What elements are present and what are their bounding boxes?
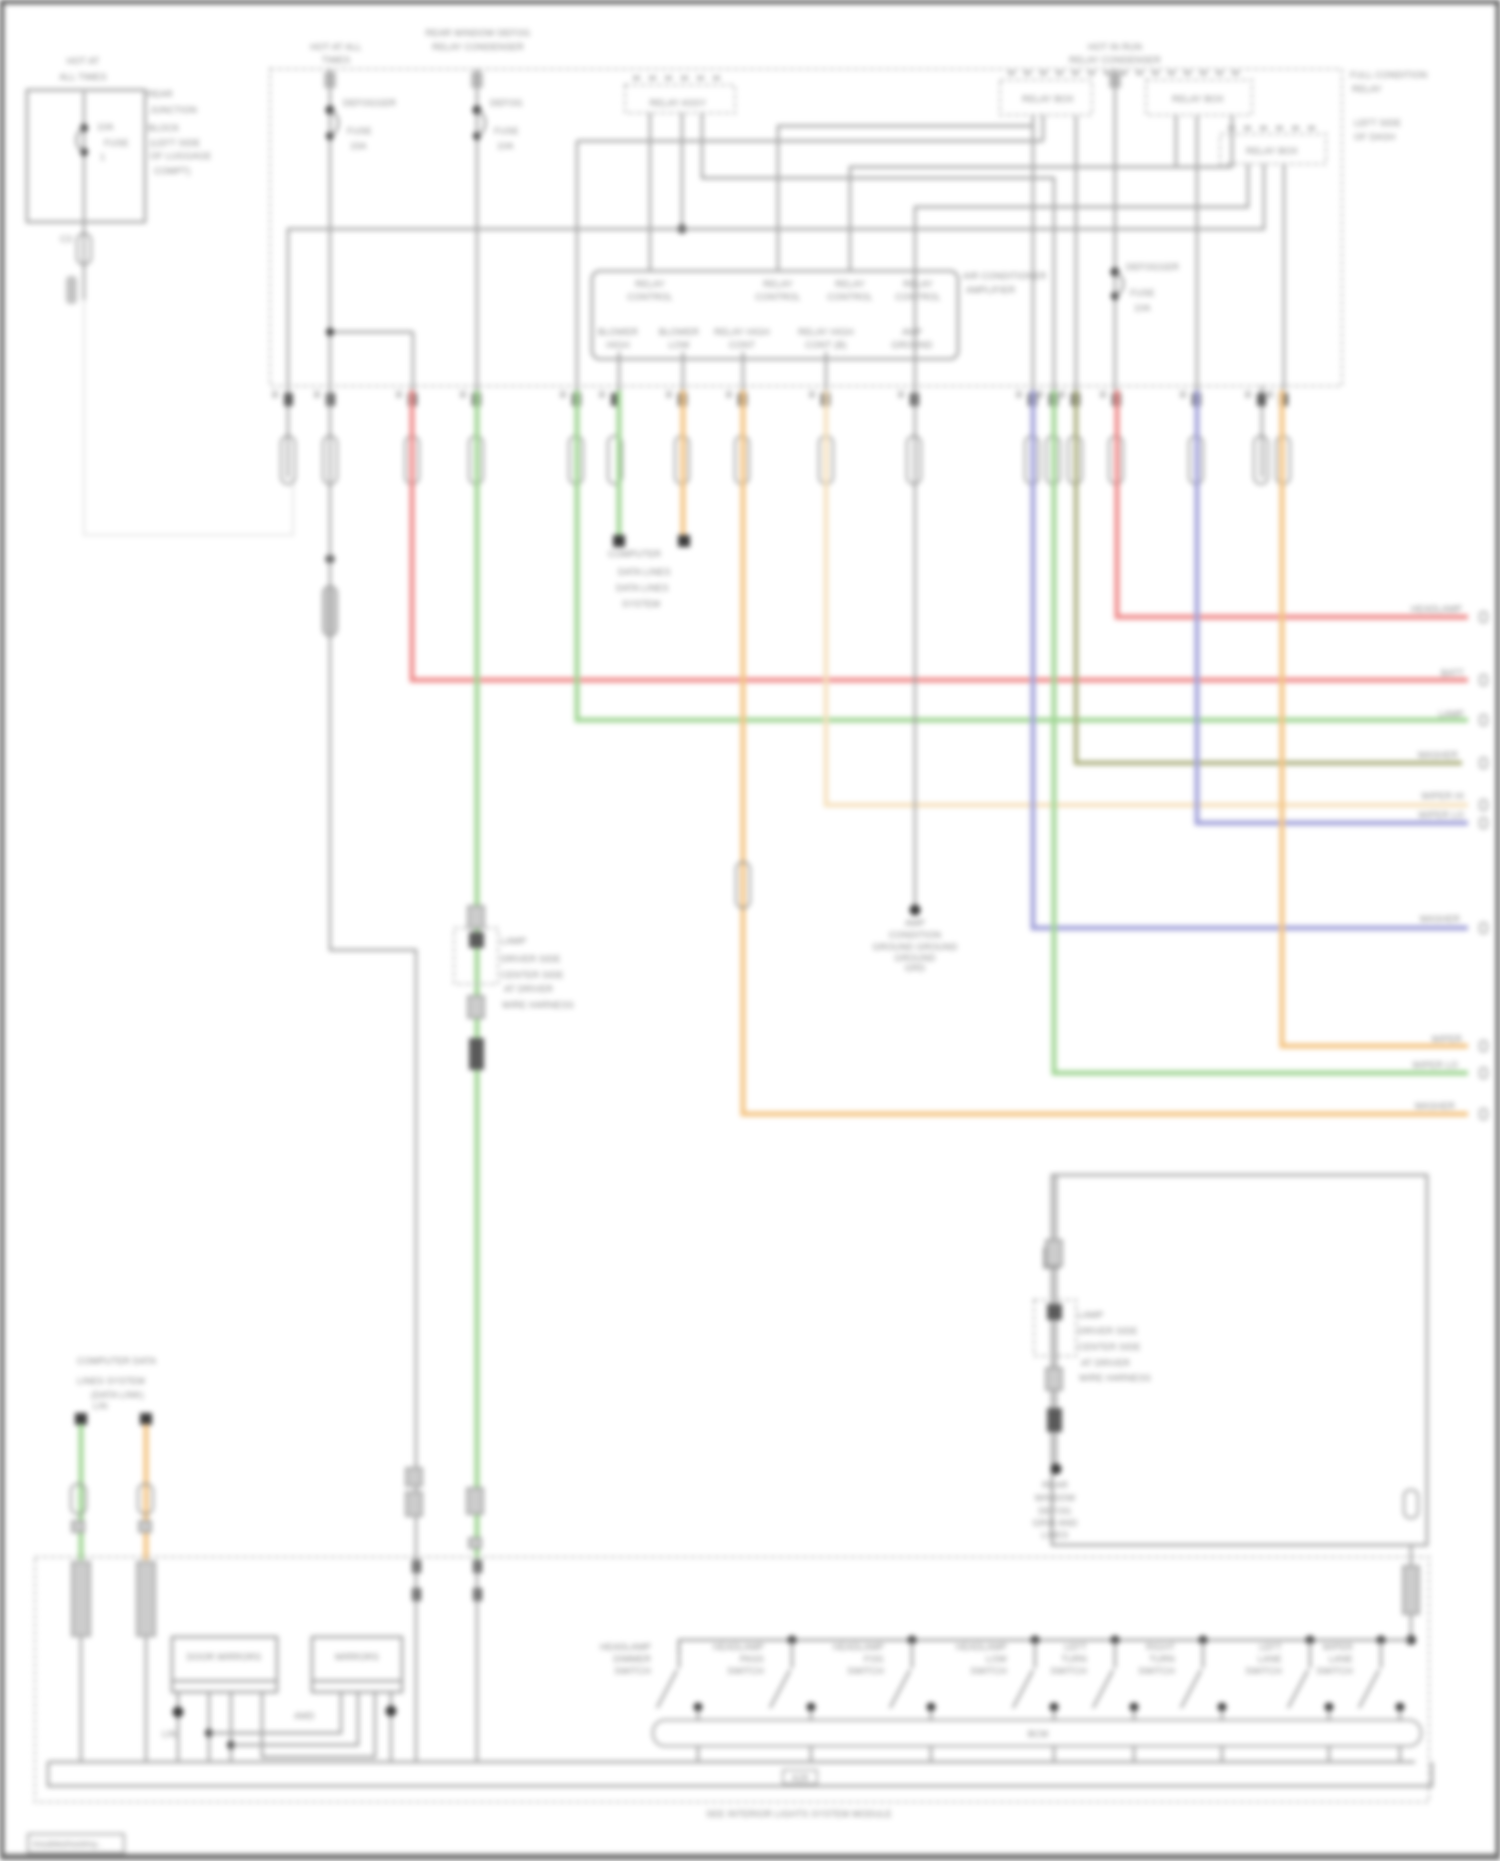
svg-text:CONTROL: CONTROL xyxy=(755,292,800,302)
svg-text:AT DRIVER: AT DRIVER xyxy=(504,984,553,994)
svg-text:GROUND: GROUND xyxy=(891,340,932,350)
svg-text:troubleshootmy..: troubleshootmy.. xyxy=(33,1839,102,1849)
svg-text:4WD: 4WD xyxy=(294,1711,315,1721)
svg-text:CONTROL: CONTROL xyxy=(827,292,872,302)
svg-text:1: 1 xyxy=(100,152,105,162)
svg-text:MIRRORS: MIRRORS xyxy=(335,1652,379,1662)
svg-text:OF LUGGAGE: OF LUGGAGE xyxy=(150,151,212,161)
svg-text:CONT: CONT xyxy=(729,340,756,350)
svg-text:(LEFT SIDE: (LEFT SIDE xyxy=(150,138,200,148)
svg-text:BATT: BATT xyxy=(1441,668,1464,678)
svg-text:AMPLIFIER: AMPLIFIER xyxy=(966,285,1016,295)
svg-text:GROUND: GROUND xyxy=(894,953,935,963)
svg-text:CONTROL: CONTROL xyxy=(627,292,672,302)
svg-text:DEFOG: DEFOG xyxy=(1038,1506,1071,1516)
svg-text:RELAY: RELAY xyxy=(835,279,865,289)
svg-text:WASHER: WASHER xyxy=(1415,1101,1456,1111)
svg-text:COMPUTER: COMPUTER xyxy=(608,549,661,559)
svg-text:RELAY BOX: RELAY BOX xyxy=(1172,94,1224,104)
svg-text:HEADLAMP: HEADLAMP xyxy=(600,1642,651,1652)
svg-text:GROUND GROUND: GROUND GROUND xyxy=(872,942,957,952)
svg-text:WINDOW: WINDOW xyxy=(1035,1493,1076,1503)
svg-text:HEADLAMP: HEADLAMP xyxy=(1411,604,1462,614)
svg-text:TIMES: TIMES xyxy=(322,55,351,65)
svg-text:DEFOGGER: DEFOGGER xyxy=(343,98,396,108)
svg-text:HOT AT ALL: HOT AT ALL xyxy=(310,42,362,52)
svg-text:DATA LINES: DATA LINES xyxy=(618,567,671,577)
svg-text:WIPER: WIPER xyxy=(1431,1034,1462,1044)
svg-text:REAR WINDOW DEFOG: REAR WINDOW DEFOG xyxy=(426,28,531,38)
svg-text:HEADLAMP: HEADLAMP xyxy=(713,1642,764,1652)
svg-text:CONDITION: CONDITION xyxy=(889,930,941,940)
svg-text:10A: 10A xyxy=(97,122,114,132)
svg-text:HOT AT: HOT AT xyxy=(67,56,100,66)
svg-text:DATA LINES: DATA LINES xyxy=(616,583,669,593)
svg-text:RELAY BOX: RELAY BOX xyxy=(1022,94,1074,104)
svg-text:SWITCH: SWITCH xyxy=(1138,1666,1175,1676)
svg-text:10A: 10A xyxy=(1134,303,1151,313)
svg-text:RELAY: RELAY xyxy=(1352,84,1382,94)
svg-text:SWITCH: SWITCH xyxy=(970,1666,1007,1676)
svg-text:TURN: TURN xyxy=(1061,1654,1087,1664)
svg-text:JUNCTION: JUNCTION xyxy=(150,105,197,115)
svg-text:REAR: REAR xyxy=(147,89,173,99)
svg-text:GRID AND: GRID AND xyxy=(1032,1518,1077,1528)
svg-text:FOG: FOG xyxy=(864,1654,884,1664)
svg-text:FUSE: FUSE xyxy=(494,126,519,136)
svg-text:FULL CONDITION: FULL CONDITION xyxy=(1350,70,1427,80)
svg-text:RIGHT: RIGHT xyxy=(1146,1642,1175,1652)
svg-text:FUSE: FUSE xyxy=(347,126,372,136)
svg-text:FUSE: FUSE xyxy=(1130,288,1155,298)
svg-text:SWITCH: SWITCH xyxy=(614,1666,651,1676)
svg-text:RELAY BOX: RELAY BOX xyxy=(1246,146,1298,156)
svg-text:LIN: LIN xyxy=(162,1729,177,1739)
svg-text:SYSTEM: SYSTEM xyxy=(622,599,660,609)
svg-text:DRIVER SIDE: DRIVER SIDE xyxy=(501,954,561,964)
svg-text:CONT (B): CONT (B) xyxy=(805,340,846,350)
svg-text:LAMP: LAMP xyxy=(1078,1310,1103,1320)
svg-text:RELAY HIGH: RELAY HIGH xyxy=(798,327,854,337)
svg-text:HEADLAMP: HEADLAMP xyxy=(833,1642,884,1652)
svg-text:BLOWER: BLOWER xyxy=(659,327,700,337)
svg-text:LEFT SIDE: LEFT SIDE xyxy=(1354,118,1401,128)
svg-text:CONTROL: CONTROL xyxy=(895,292,940,302)
svg-text:LINES SYSTEM: LINES SYSTEM xyxy=(77,1376,145,1386)
svg-text:DEFOGGER: DEFOGGER xyxy=(1126,262,1179,272)
svg-text:RELAY: RELAY xyxy=(903,279,933,289)
svg-text:LINES: LINES xyxy=(1041,1530,1068,1540)
svg-text:C3: C3 xyxy=(60,234,72,244)
svg-text:SWITCH: SWITCH xyxy=(1316,1666,1353,1676)
svg-text:WIPER LO: WIPER LO xyxy=(1412,1060,1458,1070)
svg-text:WASHER: WASHER xyxy=(1418,750,1459,760)
svg-text:AT DRIVER: AT DRIVER xyxy=(1081,1358,1130,1368)
svg-text:LOW: LOW xyxy=(668,340,689,350)
svg-text:SWITCH: SWITCH xyxy=(727,1666,764,1676)
svg-text:WIRE HARNESS: WIRE HARNESS xyxy=(502,1000,574,1010)
svg-text:WASHER: WASHER xyxy=(1420,914,1461,924)
svg-text:BLOWER: BLOWER xyxy=(598,327,639,337)
svg-text:BLOCK: BLOCK xyxy=(148,123,180,133)
svg-text:FUSE: FUSE xyxy=(104,138,129,148)
svg-text:LAMP: LAMP xyxy=(501,936,526,946)
svg-text:DIMMER: DIMMER xyxy=(613,1654,651,1664)
svg-text:WIPER LO: WIPER LO xyxy=(1418,810,1464,820)
svg-text:PASS: PASS xyxy=(740,1654,764,1664)
svg-text:RELAY CONDENSER: RELAY CONDENSER xyxy=(432,42,524,52)
svg-text:HIGH: HIGH xyxy=(606,340,629,350)
svg-text:OF DASH: OF DASH xyxy=(1354,132,1395,142)
svg-text:LANE: LANE xyxy=(1258,1654,1282,1664)
svg-text:10A: 10A xyxy=(497,141,514,151)
svg-text:GRD: GRD xyxy=(905,963,926,973)
svg-text:WIPER: WIPER xyxy=(1322,1642,1353,1652)
svg-text:LEFT: LEFT xyxy=(1064,1642,1087,1652)
svg-text:AIR CONDITIONER: AIR CONDITIONER xyxy=(963,271,1047,281)
svg-text:DRIVER SIDE: DRIVER SIDE xyxy=(1078,1326,1138,1336)
svg-text:RELAY: RELAY xyxy=(635,279,665,289)
svg-text:AMP: AMP xyxy=(905,918,925,928)
svg-text:WIPER HI: WIPER HI xyxy=(1421,791,1464,801)
svg-text:RELAY HIGH: RELAY HIGH xyxy=(714,327,770,337)
svg-text:RELAY: RELAY xyxy=(763,279,793,289)
svg-text:15A: 15A xyxy=(350,141,367,151)
svg-text:LIN: LIN xyxy=(93,1401,108,1411)
svg-text:REAR: REAR xyxy=(1042,1480,1068,1490)
svg-text:LEFT: LEFT xyxy=(1259,1642,1282,1652)
svg-text:WIRE HARNESS: WIRE HARNESS xyxy=(1079,1373,1151,1383)
svg-text:CENTER SIDE: CENTER SIDE xyxy=(1078,1342,1141,1352)
svg-text:HOT IN RUN: HOT IN RUN xyxy=(1088,42,1142,52)
svg-text:LOW: LOW xyxy=(986,1654,1007,1664)
svg-text:HEADLAMP: HEADLAMP xyxy=(956,1642,1007,1652)
svg-text:LANE: LANE xyxy=(1329,1654,1353,1664)
svg-text:TURN: TURN xyxy=(1149,1654,1175,1664)
svg-text:COMPUTER DATA: COMPUTER DATA xyxy=(77,1356,156,1366)
svg-text:SEE INTERIOR LIGHTS SYSTEM MOD: SEE INTERIOR LIGHTS SYSTEM MODULE xyxy=(706,1809,892,1819)
svg-text:SWITCH: SWITCH xyxy=(847,1666,884,1676)
svg-text:(DATA LINK): (DATA LINK) xyxy=(91,1390,144,1400)
svg-text:AMP: AMP xyxy=(902,327,922,337)
svg-text:A28: A28 xyxy=(792,1773,809,1783)
svg-text:RELAY ASSY: RELAY ASSY xyxy=(650,98,707,108)
svg-text:SWITCH: SWITCH xyxy=(1050,1666,1087,1676)
svg-text:BCM: BCM xyxy=(1028,1729,1049,1739)
svg-text:COMPT): COMPT) xyxy=(154,166,191,176)
svg-text:SWITCH: SWITCH xyxy=(1245,1666,1282,1676)
svg-text:DEFOG: DEFOG xyxy=(490,98,523,108)
svg-text:CENTER SIDE: CENTER SIDE xyxy=(501,970,564,980)
svg-text:RELAY CONDENSER: RELAY CONDENSER xyxy=(1069,55,1161,65)
svg-text:ALL TIMES: ALL TIMES xyxy=(59,72,106,82)
svg-text:LAMP: LAMP xyxy=(1439,709,1464,719)
svg-text:DOOR MIRRORS: DOOR MIRRORS xyxy=(187,1652,261,1662)
